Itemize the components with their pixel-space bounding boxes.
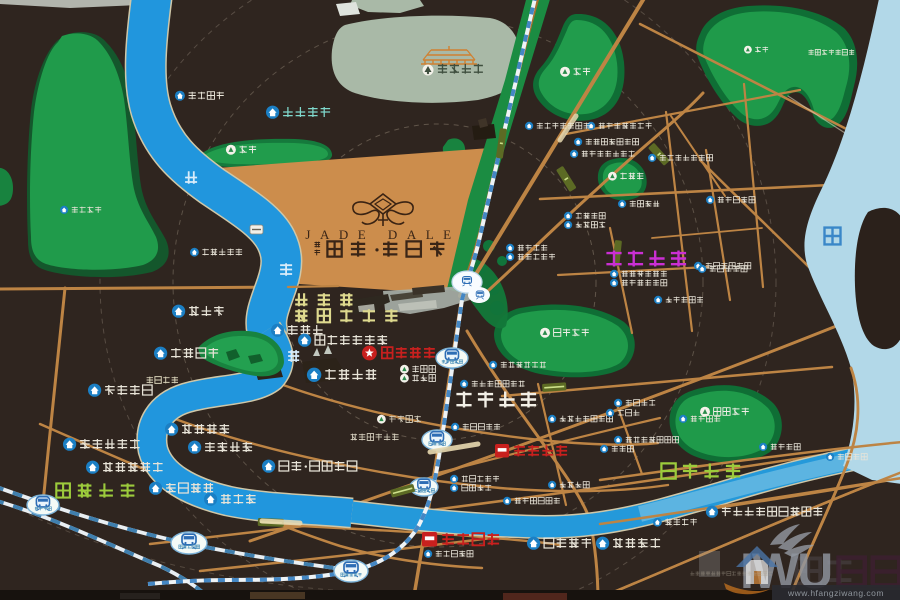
svg-text:www.hfangziwang.com: www.hfangziwang.com bbox=[787, 588, 884, 598]
svg-text:JADE DALE: JADE DALE bbox=[305, 227, 460, 242]
